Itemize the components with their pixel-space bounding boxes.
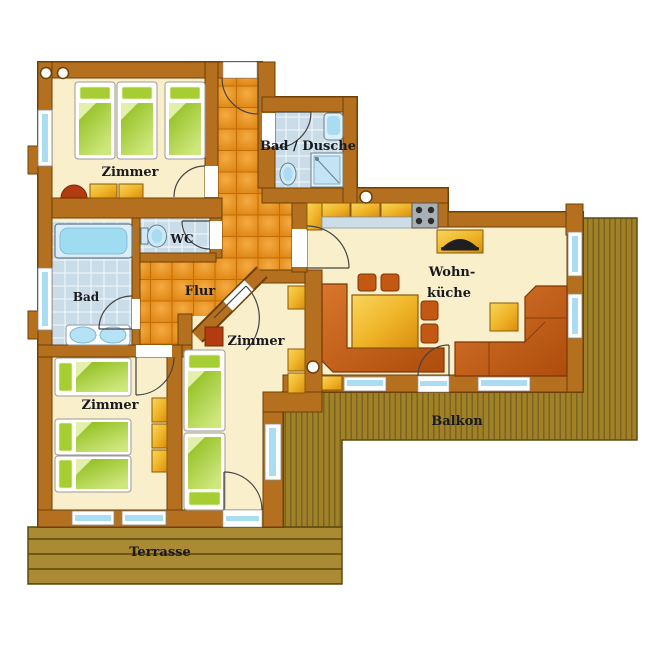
window [568,294,582,338]
cabinet [288,373,305,393]
shower [311,153,343,187]
window [122,511,166,525]
side-table [490,303,518,331]
label-bath-shower: Bad / Dusche [260,139,356,154]
stove [412,203,438,228]
wardrobe [152,398,167,422]
bed [165,82,205,159]
cabinet [288,349,305,371]
post [360,191,372,203]
kitchen-cabinet [381,203,412,217]
cabinet [288,286,305,309]
chair [421,324,438,343]
window [478,377,530,391]
cabinet [90,184,117,198]
label-terrace: Terrasse [129,545,190,560]
bed [55,419,131,455]
stool [205,327,223,346]
post [307,361,319,373]
window [38,268,52,330]
floor-plan-page: Zimmer Bad / Dusche WC Bad Flur Wohn- kü… [0,0,660,660]
wc-room [141,225,167,247]
cabinet [119,184,143,198]
kitchen-counter [322,217,412,228]
wardrobe [152,424,167,448]
window [265,424,281,480]
bed [184,433,225,510]
planter [322,376,342,390]
toilet [141,225,167,247]
label-wc: WC [169,232,193,246]
toilet [280,163,296,185]
chair [381,274,399,291]
label-bath: Bad [73,290,100,304]
post [58,68,69,79]
dining-table [352,295,418,348]
bed [184,350,225,431]
kitchen-cabinet [322,203,350,217]
double-washbasin [66,325,130,345]
tv-cabinet [437,230,483,253]
kitchen-cabinet [351,203,380,217]
label-balcony: Balkon [431,414,483,429]
window [344,377,386,391]
window [38,110,52,166]
chair [358,274,376,291]
bed [55,456,131,492]
label-room-left: Zimmer [81,398,138,413]
wardrobe [152,450,167,472]
sink [324,113,343,140]
label-living-kitchen-2: küche [427,286,471,301]
window [568,232,582,276]
bed [55,358,131,396]
bed [117,82,157,159]
chair [421,301,438,320]
label-room-middle: Zimmer [227,334,284,349]
label-room-top: Zimmer [101,165,158,180]
label-living-kitchen-1: Wohn- [428,265,476,280]
post [41,68,52,79]
floor-plan: Zimmer Bad / Dusche WC Bad Flur Wohn- kü… [0,0,660,660]
label-hall: Flur [185,284,216,299]
bed [75,82,115,159]
window [72,511,114,525]
